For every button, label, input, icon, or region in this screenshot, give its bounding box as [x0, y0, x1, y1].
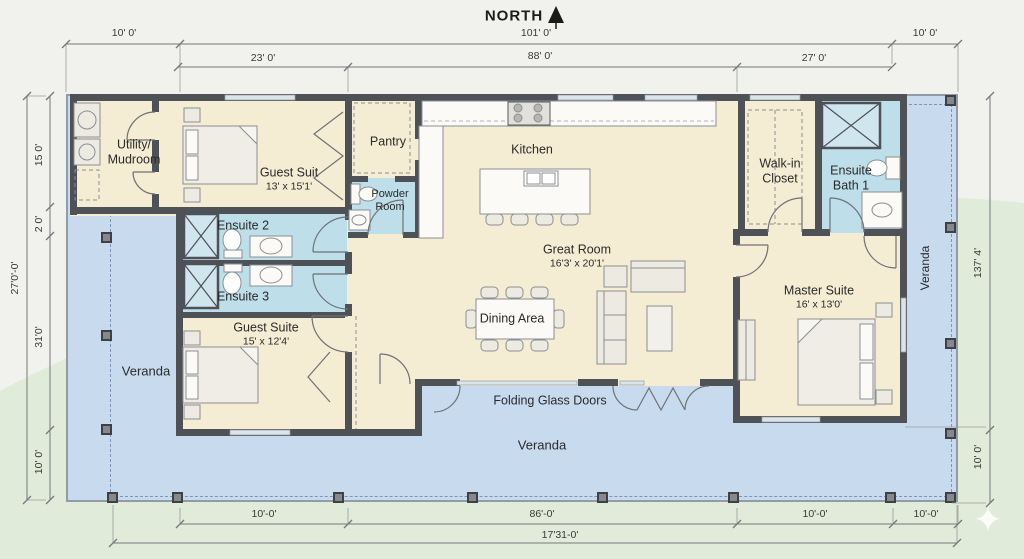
label-veranda-right: Veranda: [918, 246, 932, 291]
dim-left-seg2: 2 0': [33, 216, 45, 233]
room-label-great-room: Great Room 16'3' x 20'1': [543, 228, 611, 285]
hall-door: [380, 354, 410, 384]
room-size: 16'3' x 20'1': [543, 257, 611, 269]
room-name: Master Suite: [784, 283, 854, 297]
room-label-ensuite-bath-1: Ensuite Bath 1: [830, 163, 872, 193]
dim-left-seg4: 10' 0': [33, 450, 45, 474]
guest-suite-2-closet-bifold: [308, 352, 330, 402]
north-label: NORTH: [485, 8, 543, 25]
dim-right-seg: 10' 0': [972, 445, 984, 469]
room-size: 13' x 15'1': [260, 180, 318, 192]
room-label-guest-suit-1: Guest Suit 13' x 15'1': [260, 151, 318, 208]
dim-left-overall: 27'0'-0': [9, 262, 21, 295]
label-veranda-left: Veranda: [122, 363, 170, 378]
plan-linework: [0, 0, 1024, 559]
room-label-guest-suite-2: Guest Suite 15' x 12'4': [233, 306, 298, 363]
room-label-ensuite-3: Ensuite 3: [217, 290, 269, 305]
room-name: Guest Suite: [233, 320, 298, 334]
room-name: Great Room: [543, 242, 611, 256]
dim-bottom-seg3: 10'-0': [802, 508, 827, 520]
room-name: Guest Suit: [260, 165, 318, 179]
dim-left-seg1: 15 0': [33, 144, 45, 166]
guest-suit-1-bed: [183, 108, 257, 202]
dim-top-main: 101' 0': [521, 27, 551, 39]
dim-right-overall: 137' 4': [972, 248, 984, 278]
room-label-utility: Utility/ Mudroom: [108, 137, 161, 167]
utility-door-2: [133, 172, 155, 194]
dim-bottom-mid: 86'-0': [529, 508, 554, 520]
dim-bottom-seg1: 10'-0': [251, 508, 276, 520]
room-label-master-suite: Master Suite 16' x 13'0': [784, 269, 854, 326]
room-size: 15' x 12'4': [233, 335, 298, 347]
ensuite-bath-1-door: [830, 198, 864, 232]
master-second-door: [864, 236, 896, 268]
room-size: 16' x 13'0': [784, 298, 854, 310]
room-label-kitchen: Kitchen: [511, 143, 553, 158]
sparkle-decoration: ✦: [973, 502, 1003, 538]
dim-top2-mid: 88' 0': [528, 50, 552, 62]
label-veranda-bottom: Veranda: [518, 437, 566, 452]
dim-bottom-seg4: 10'-0': [913, 508, 938, 520]
furniture: [74, 101, 902, 429]
dim-top2-left: 23' 0': [251, 52, 275, 64]
dim-bottom-total: 17'31-0': [542, 529, 579, 541]
floor-plan-canvas: NORTH Utility/ Mudroom Guest Suit 13' x …: [0, 0, 1024, 559]
dim-top-right: 10' 0': [913, 27, 937, 39]
utility-appliances: [74, 103, 100, 200]
walk-in-door: [768, 198, 802, 232]
folding-door-arc-left: [434, 386, 460, 412]
ensuite-3-door: [313, 274, 348, 309]
dim-top2-right: 27' 0': [802, 52, 826, 64]
ensuite-2-door: [313, 217, 348, 252]
folding-door-arcs-right: [613, 386, 709, 410]
kitchen-island: [480, 169, 590, 225]
label-folding-glass-doors: Folding Glass Doors: [493, 394, 606, 409]
master-door: [736, 245, 768, 277]
room-label-walk-in: Walk-in Closet: [759, 156, 800, 186]
room-label-ensuite-2: Ensuite 2: [217, 219, 269, 234]
room-label-pantry: Pantry: [370, 135, 406, 150]
guest-suite-2-door: [312, 316, 348, 352]
utility-door-1: [127, 112, 155, 140]
dim-left-seg3: 31'0': [33, 326, 45, 348]
guest-suit-1-closet-bifold: [314, 112, 343, 200]
room-label-powder: Powder Room: [371, 188, 408, 214]
room-label-dining: Dining Area: [480, 312, 545, 327]
north-arrow-icon: [548, 6, 564, 29]
dim-top-left: 10' 0': [112, 27, 136, 39]
